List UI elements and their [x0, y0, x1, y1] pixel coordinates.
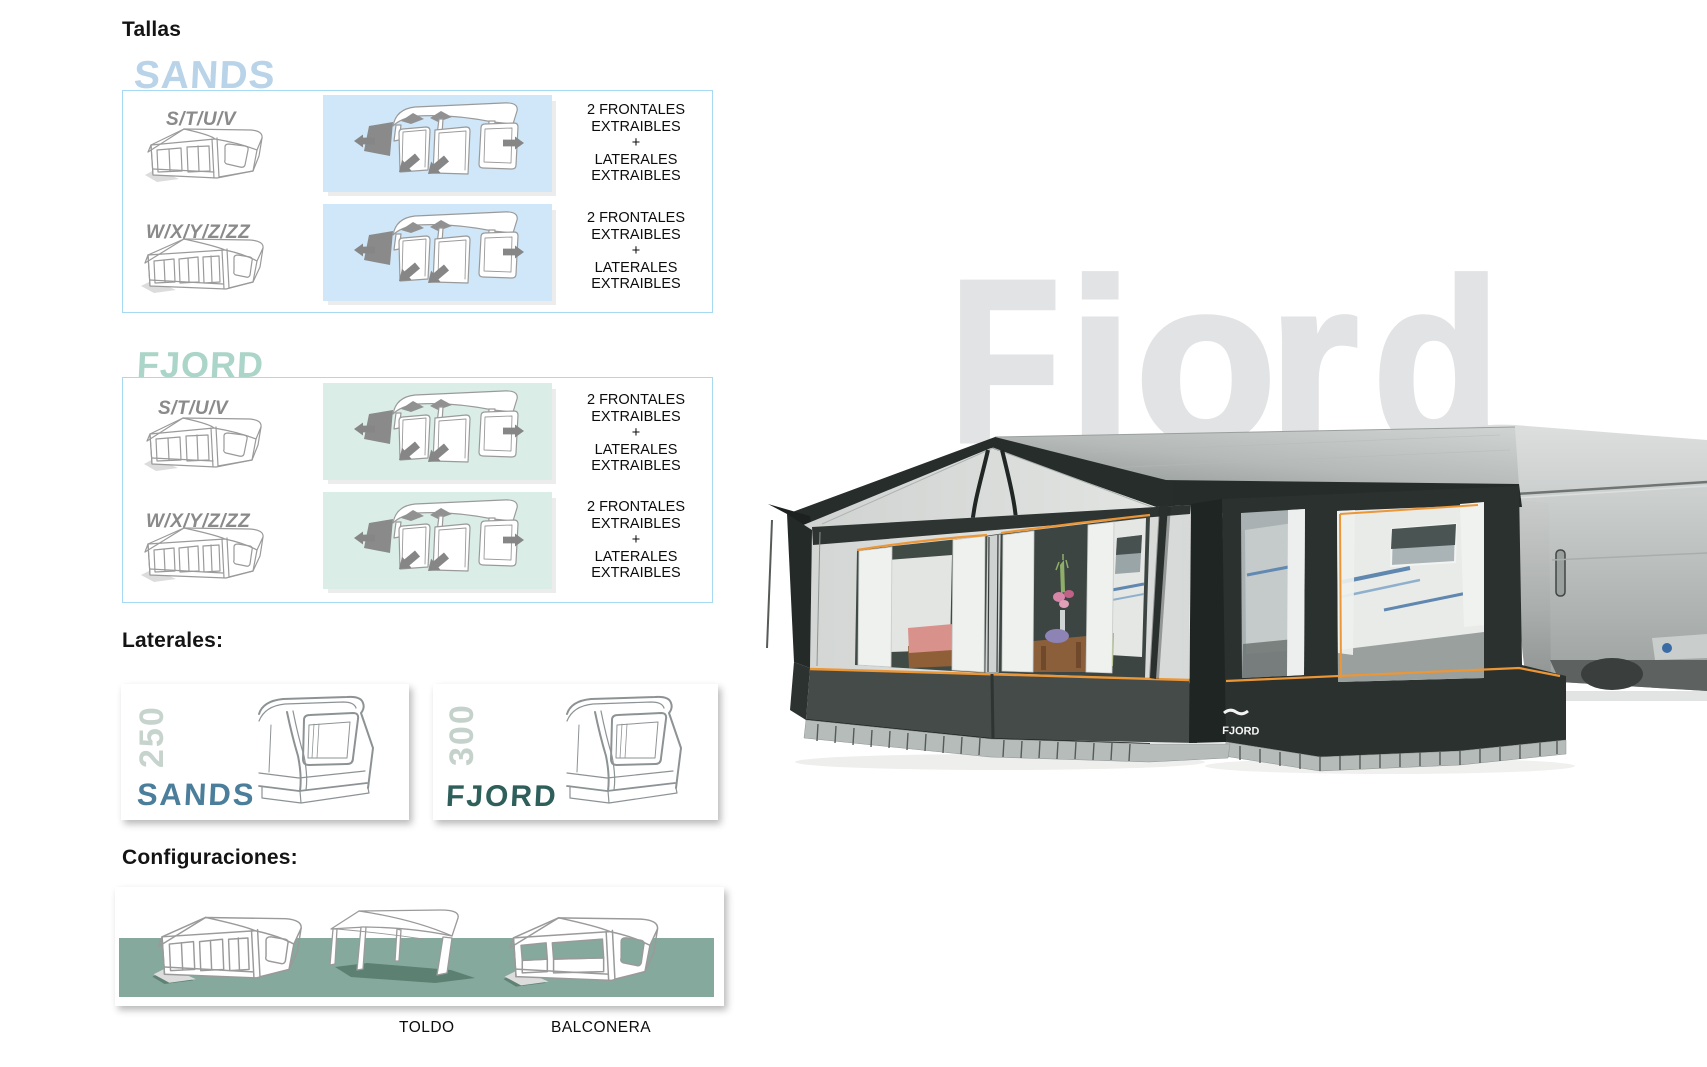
svg-text:FJORD: FJORD [1222, 725, 1260, 738]
